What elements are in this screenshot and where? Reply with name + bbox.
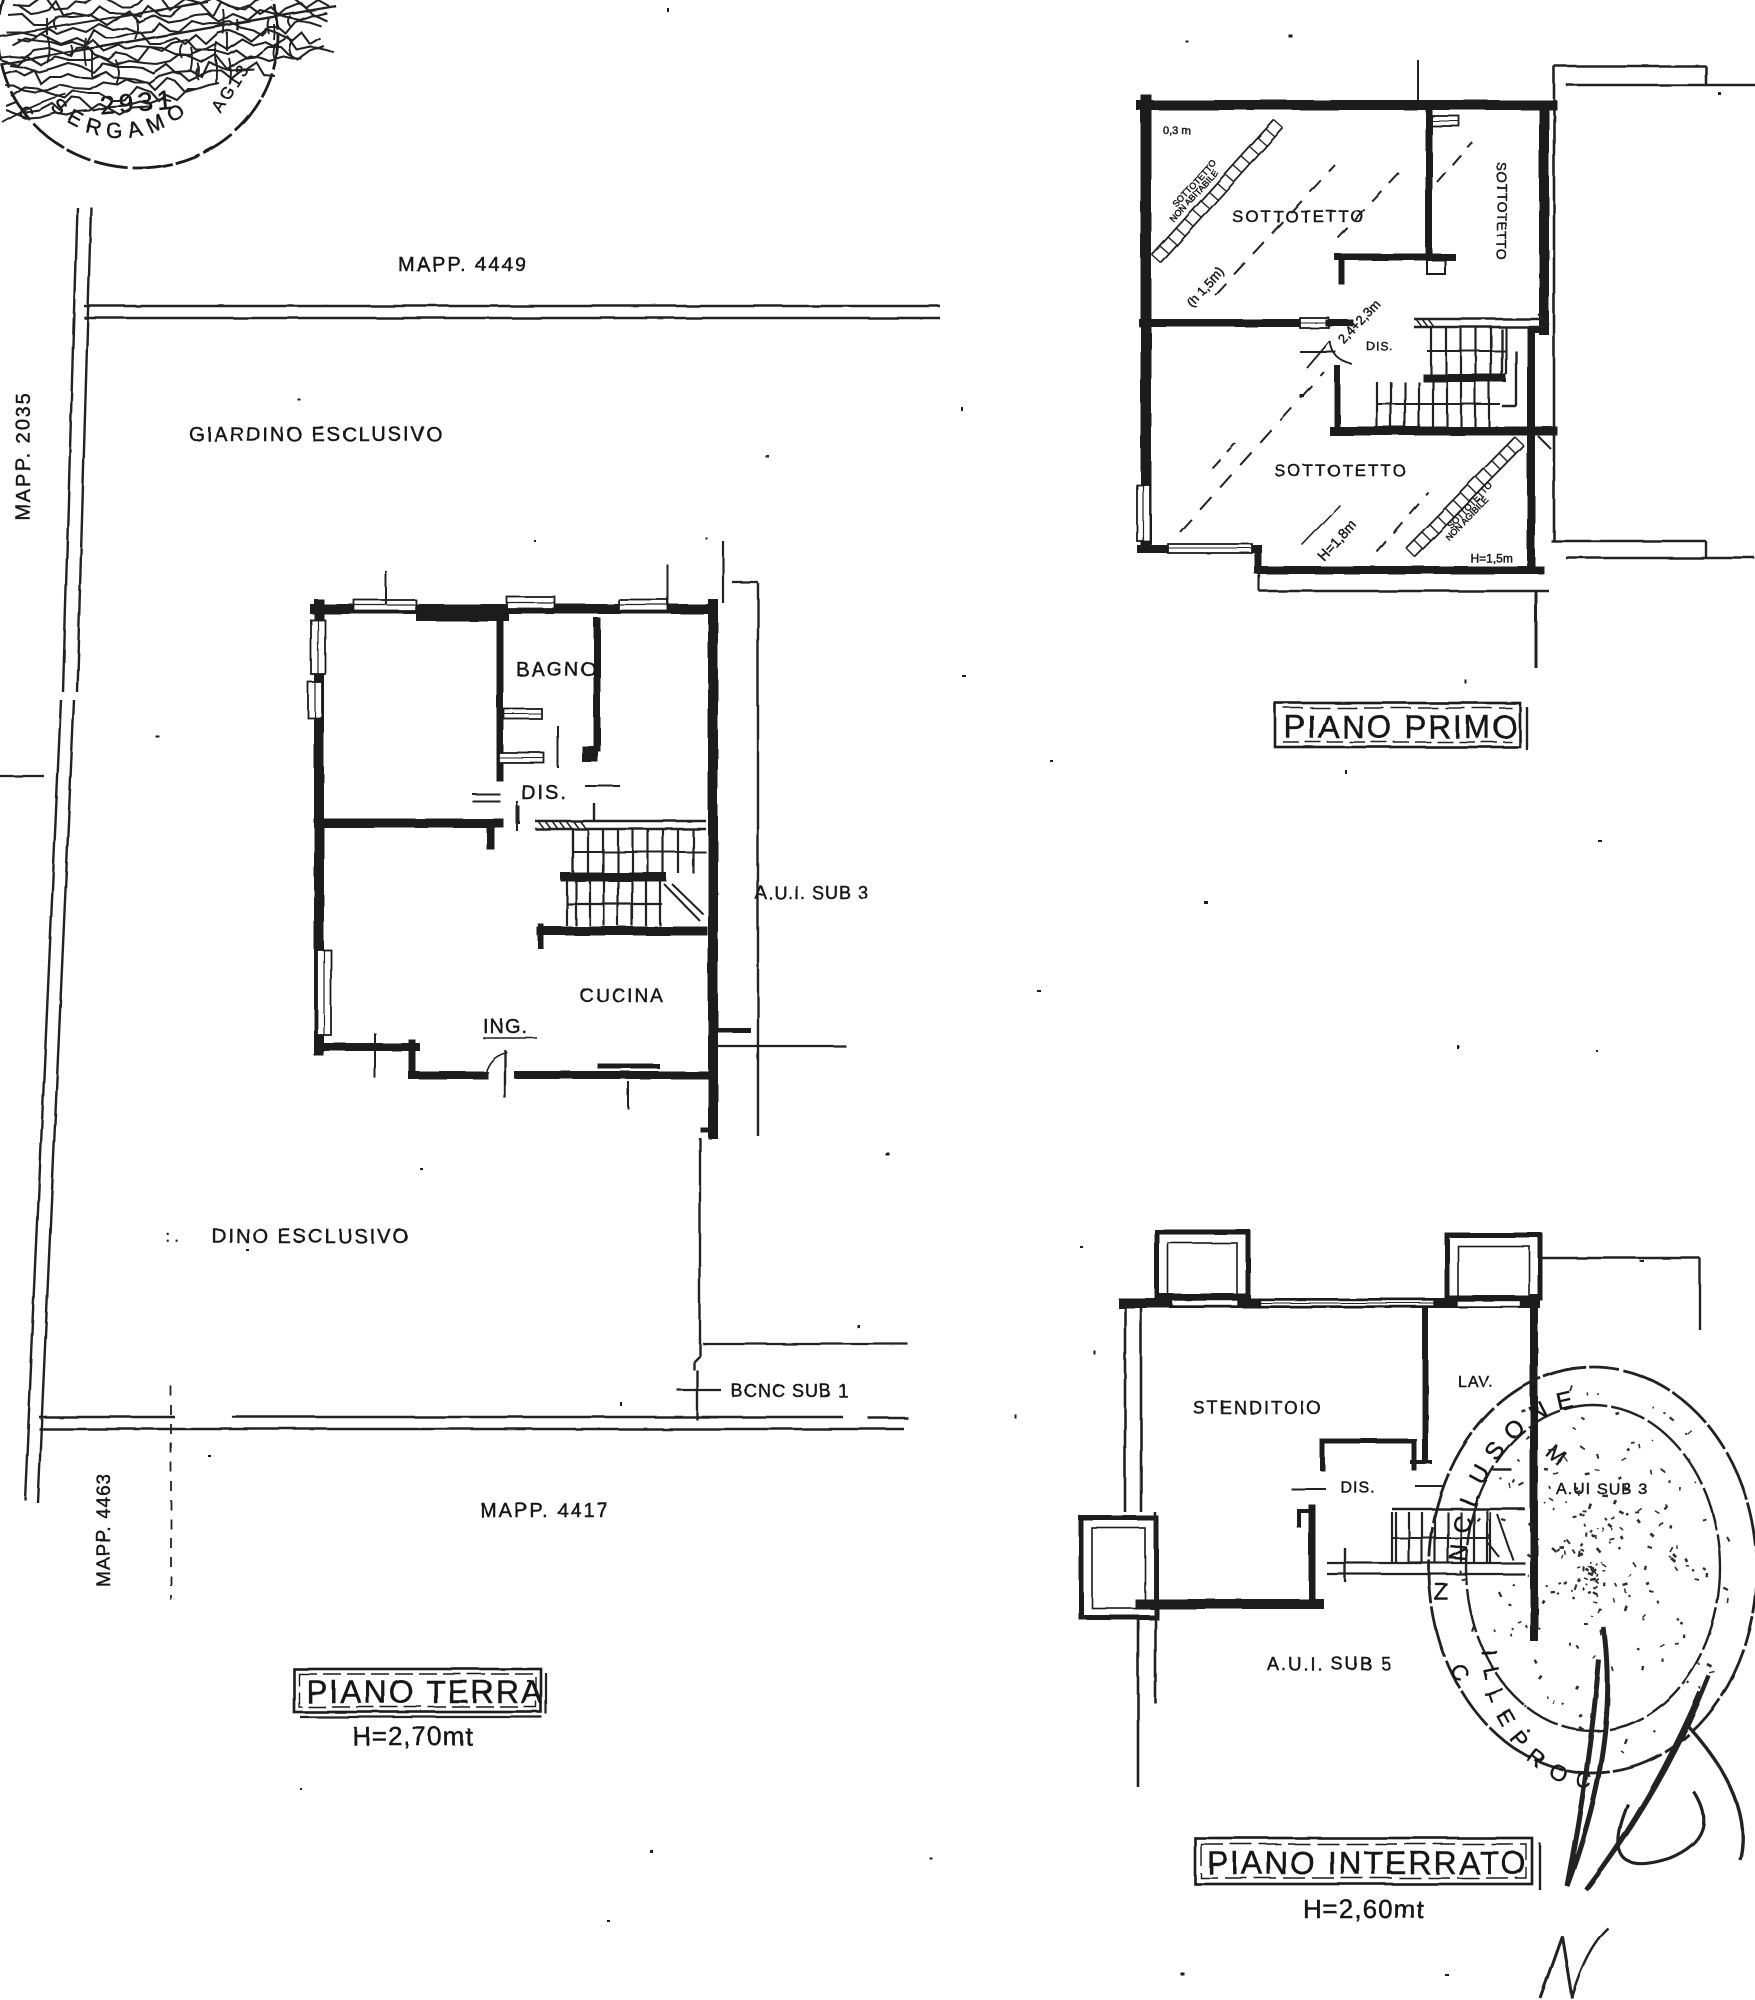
svg-text:A.U.I. SUB 5: A.U.I. SUB 5 bbox=[1267, 1654, 1393, 1674]
svg-text:ING.: ING. bbox=[483, 1016, 528, 1038]
svg-text:A.UI SUB 3: A.UI SUB 3 bbox=[1556, 1481, 1648, 1498]
svg-text:H=1,5m: H=1,5m bbox=[1470, 551, 1512, 565]
svg-text:DIS.: DIS. bbox=[521, 782, 568, 804]
svg-text:A.U.I. SUB 3: A.U.I. SUB 3 bbox=[755, 883, 869, 903]
svg-text:CUCINA: CUCINA bbox=[580, 986, 665, 1007]
svg-text:SOTTOTETTO: SOTTOTETTO bbox=[1494, 162, 1510, 261]
svg-text:PIANO INTERRATO: PIANO INTERRATO bbox=[1207, 1845, 1527, 1881]
svg-text:H=2,70mt: H=2,70mt bbox=[352, 1721, 473, 1751]
svg-text:DIS.: DIS. bbox=[1340, 1479, 1375, 1496]
svg-text:MAPP. 4449: MAPP. 4449 bbox=[398, 254, 528, 276]
svg-text:PIANO PRIMO: PIANO PRIMO bbox=[1284, 709, 1519, 745]
svg-text:BCNC SUB 1: BCNC SUB 1 bbox=[731, 1381, 849, 1401]
svg-text:: .: : . bbox=[166, 1229, 179, 1246]
svg-text:DIS.: DIS. bbox=[1366, 339, 1393, 353]
svg-text:MAPP. 4417: MAPP. 4417 bbox=[480, 1500, 610, 1522]
svg-text:SOTTOTETTO: SOTTOTETTO bbox=[1274, 461, 1408, 480]
svg-text:STENDITOIO: STENDITOIO bbox=[1193, 1398, 1323, 1418]
svg-text:MAPP. 2035: MAPP. 2035 bbox=[13, 391, 35, 521]
svg-text:BAGNO: BAGNO bbox=[516, 659, 598, 681]
svg-text:DINO ESCLUSIVO: DINO ESCLUSIVO bbox=[212, 1226, 410, 1248]
svg-text:MAPP. 4463: MAPP. 4463 bbox=[94, 1473, 115, 1587]
svg-text:SOTTOTETTO: SOTTOTETTO bbox=[1232, 207, 1366, 226]
svg-text:LAV.: LAV. bbox=[1458, 1374, 1494, 1391]
svg-text:PIANO TERRA: PIANO TERRA bbox=[306, 1674, 544, 1710]
svg-text:H=2,60mt: H=2,60mt bbox=[1303, 1894, 1424, 1924]
svg-text:GIARDINO ESCLUSIVO: GIARDINO ESCLUSIVO bbox=[189, 424, 444, 446]
svg-text:Z: Z bbox=[1434, 1579, 1449, 1606]
svg-text:0,3 m: 0,3 m bbox=[1163, 125, 1191, 137]
